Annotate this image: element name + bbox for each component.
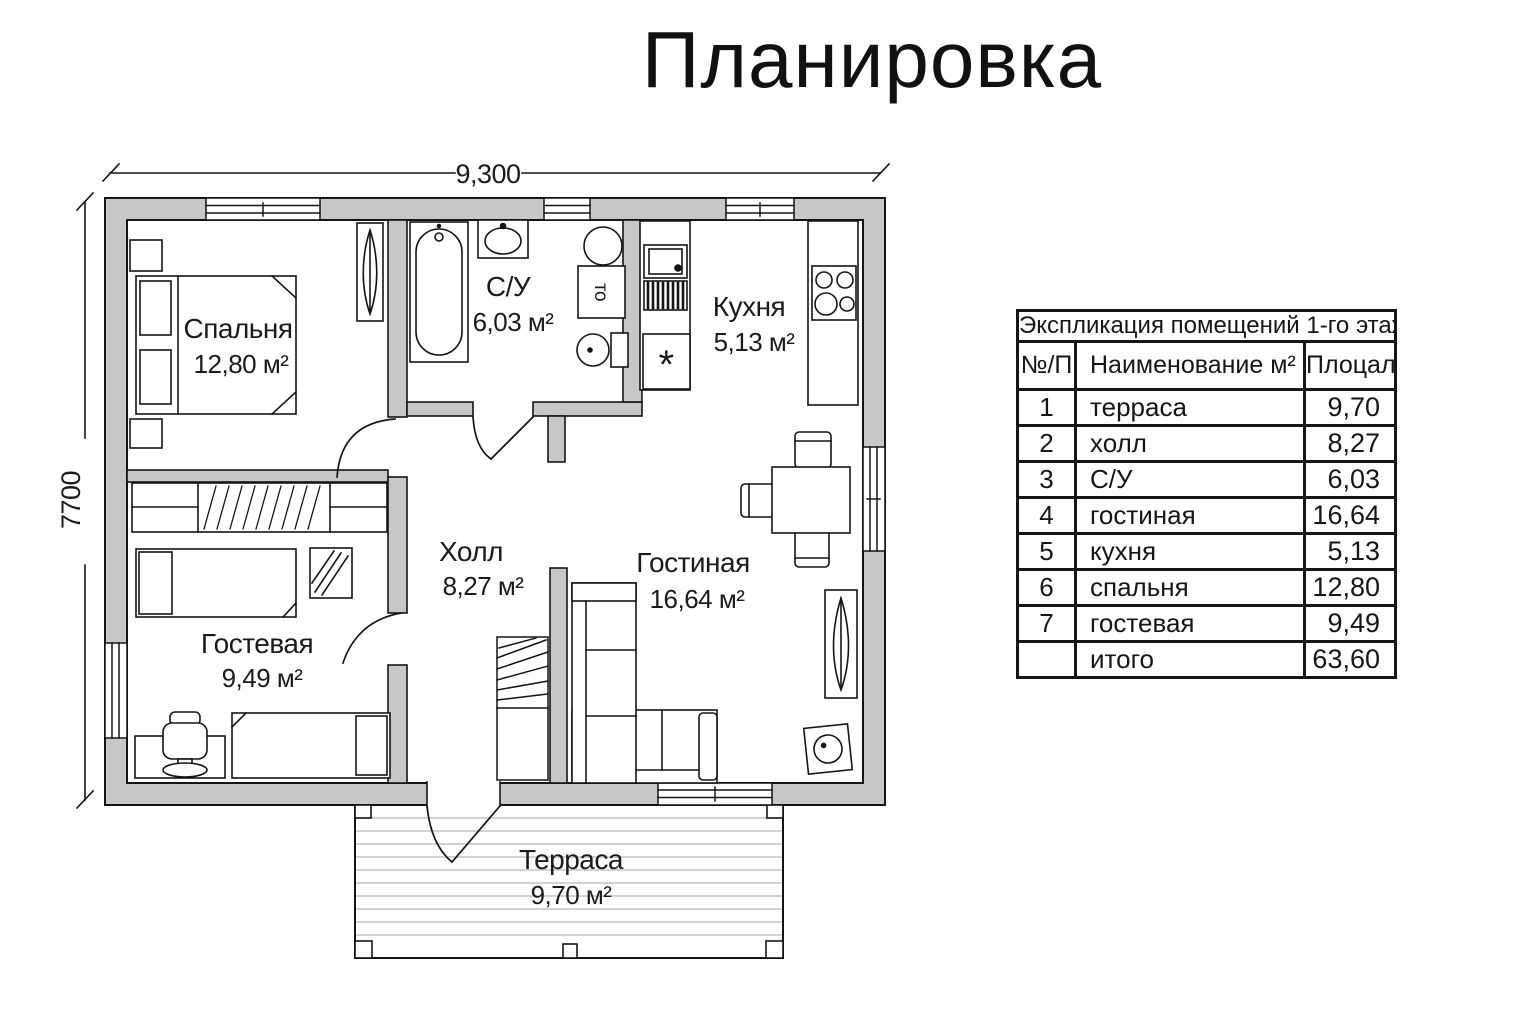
row-num: 3 bbox=[1018, 462, 1076, 498]
kitchen-window bbox=[726, 198, 794, 220]
water-heater bbox=[584, 227, 622, 265]
door-arcs bbox=[337, 417, 533, 663]
chair bbox=[795, 529, 829, 567]
kitchen-label: Кухня bbox=[713, 291, 785, 322]
living-label: Гостиная bbox=[636, 547, 750, 578]
dresser bbox=[310, 548, 352, 598]
hall-area: 8,27 м² bbox=[443, 571, 525, 601]
dining-table bbox=[772, 467, 850, 533]
dimension-top-label: 9,300 bbox=[455, 159, 520, 189]
col-header-area: Плоцаль bbox=[1305, 342, 1396, 390]
row-num: 2 bbox=[1018, 426, 1076, 462]
dimension-left: 7700 bbox=[56, 193, 93, 808]
nightstand bbox=[130, 419, 162, 448]
row-area: 8,27 bbox=[1305, 426, 1396, 462]
table-row: 7 гостевая 9,49 bbox=[1018, 606, 1396, 642]
bathroom-door-leaf bbox=[491, 417, 533, 459]
table-row: 6 спальня 12,80 bbox=[1018, 570, 1396, 606]
living-radiator bbox=[825, 590, 857, 698]
dishwasher bbox=[644, 281, 687, 310]
table-row: 2 холл 8,27 bbox=[1018, 426, 1396, 462]
row-num: 4 bbox=[1018, 498, 1076, 534]
guest-area: 9,49 м² bbox=[222, 663, 304, 693]
row-name: гостевая bbox=[1076, 606, 1305, 642]
table-row: 5 кухня 5,13 bbox=[1018, 534, 1396, 570]
table-row-total: итого 63,60 bbox=[1018, 642, 1396, 678]
dining-set bbox=[741, 432, 850, 567]
row-area: 16,64 bbox=[1305, 498, 1396, 534]
table-row: 3 С/У 6,03 bbox=[1018, 462, 1396, 498]
table-row: 4 гостиная 16,64 bbox=[1018, 498, 1396, 534]
terrace-area: 9,70 м² bbox=[531, 880, 613, 910]
guest-bed-top bbox=[136, 549, 296, 617]
row-num: 5 bbox=[1018, 534, 1076, 570]
bathroom-sink bbox=[478, 220, 528, 258]
row-name: итого bbox=[1076, 642, 1305, 678]
bathroom-door-arc bbox=[473, 417, 491, 459]
washing-machine: то bbox=[578, 266, 625, 318]
bedroom-door-arc bbox=[337, 419, 395, 477]
kitchen-sink bbox=[644, 245, 687, 278]
bedroom-area: 12,80 м² bbox=[194, 349, 290, 379]
staircase bbox=[497, 637, 548, 780]
guest-left-window bbox=[105, 643, 127, 738]
wardrobe bbox=[132, 483, 387, 532]
table-header-row: №/П Наименование м² Плоцаль bbox=[1018, 342, 1396, 390]
row-name: холл bbox=[1076, 426, 1305, 462]
hall-label: Холл bbox=[439, 536, 503, 567]
row-name: терраса bbox=[1076, 390, 1305, 426]
row-num: 7 bbox=[1018, 606, 1076, 642]
row-name: С/У bbox=[1076, 462, 1305, 498]
living-right-window bbox=[863, 447, 885, 551]
guest-label: Гостевая bbox=[201, 628, 313, 659]
col-header-name: Наименование м² bbox=[1076, 342, 1305, 390]
row-area: 9,49 bbox=[1305, 606, 1396, 642]
bedroom-window bbox=[206, 198, 320, 220]
stove bbox=[812, 266, 856, 320]
bedroom-bed bbox=[136, 276, 296, 414]
dimension-top: 9,300 bbox=[103, 159, 889, 189]
explication-table: Экспликация помещений 1-го этажа №/П Наи… bbox=[1016, 309, 1397, 679]
row-num: 6 bbox=[1018, 570, 1076, 606]
row-area: 9,70 bbox=[1305, 390, 1396, 426]
living-area: 16,64 м² bbox=[650, 584, 746, 614]
living-bottom-window bbox=[658, 783, 772, 805]
row-name: спальня bbox=[1076, 570, 1305, 606]
row-num: 1 bbox=[1018, 390, 1076, 426]
chair bbox=[741, 484, 775, 517]
bathtub bbox=[410, 222, 468, 362]
row-area: 63,60 bbox=[1305, 642, 1396, 678]
washer-label: то bbox=[590, 283, 611, 301]
floor-speaker bbox=[804, 724, 853, 774]
floor-plan-svg: 9,300 7700 bbox=[0, 0, 1000, 1024]
terrace-label: Терраса bbox=[519, 844, 624, 875]
bedroom-label: Спальня bbox=[183, 313, 292, 344]
nightstand bbox=[130, 240, 162, 271]
bedroom-radiator bbox=[357, 223, 383, 321]
bathroom-label: С/У bbox=[486, 271, 531, 302]
freezer-label: * bbox=[658, 343, 673, 387]
row-num bbox=[1018, 642, 1076, 678]
row-name: гостиная bbox=[1076, 498, 1305, 534]
row-area: 6,03 bbox=[1305, 462, 1396, 498]
col-header-num: №/П bbox=[1018, 342, 1076, 390]
dimension-left-label: 7700 bbox=[56, 471, 86, 529]
row-name: кухня bbox=[1076, 534, 1305, 570]
table-title-row: Экспликация помещений 1-го этажа bbox=[1018, 311, 1396, 342]
floor-plan-page: Планировка 9,300 7700 bbox=[0, 0, 1536, 1024]
bathroom-area: 6,03 м² bbox=[473, 307, 555, 337]
guest-door-arc bbox=[343, 613, 401, 663]
chair bbox=[795, 432, 831, 468]
table-row: 1 терраса 9,70 bbox=[1018, 390, 1396, 426]
desk-chair bbox=[163, 712, 207, 777]
toilet bbox=[577, 333, 628, 367]
row-area: 5,13 bbox=[1305, 534, 1396, 570]
freezer: * bbox=[643, 334, 690, 389]
kitchen-area: 5,13 м² bbox=[714, 327, 796, 357]
bathroom-window bbox=[544, 198, 590, 220]
table-title: Экспликация помещений 1-го этажа bbox=[1018, 311, 1396, 342]
row-area: 12,80 bbox=[1305, 570, 1396, 606]
guest-bed-bottom bbox=[232, 713, 390, 778]
